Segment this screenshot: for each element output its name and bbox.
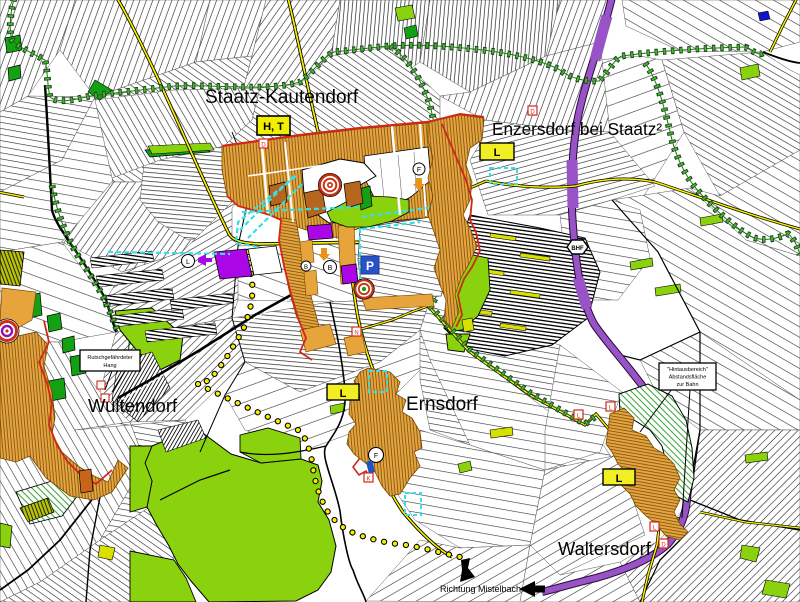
svg-text:BHF: BHF (571, 246, 584, 252)
svg-text:B: B (328, 265, 333, 272)
svg-text:Waltersdorf: Waltersdorf (558, 538, 652, 559)
svg-text:Staatz-Kautendorf: Staatz-Kautendorf (205, 87, 359, 108)
svg-text:L: L (494, 147, 501, 159)
svg-text:Enzersdorf bei Staatz²: Enzersdorf bei Staatz² (492, 119, 662, 139)
svg-text:Richtung Mistelbach: Richtung Mistelbach (440, 584, 521, 594)
svg-text:K: K (366, 477, 370, 483)
svg-text:H, T: H, T (263, 121, 284, 133)
svg-text:Rutschgefährdeter: Rutschgefährdeter (87, 355, 132, 361)
svg-text:L: L (186, 259, 190, 266)
svg-text:N: N (354, 331, 358, 337)
svg-text:Abstandsfläche: Abstandsfläche (669, 375, 707, 381)
svg-text:D: D (530, 110, 535, 116)
svg-text:D: D (661, 543, 666, 549)
svg-text:L: L (340, 388, 347, 400)
svg-text:Wultendorf: Wultendorf (88, 395, 178, 416)
svg-text:P: P (366, 259, 374, 273)
svg-text:F: F (417, 167, 421, 174)
svg-text:Hang: Hang (103, 363, 116, 369)
svg-text:zur Bahn: zur Bahn (676, 382, 698, 388)
svg-text:Ernsdorf: Ernsdorf (406, 394, 479, 415)
svg-text:D: D (261, 143, 266, 149)
svg-text:F: F (374, 453, 378, 460)
svg-text:L: L (616, 473, 623, 485)
svg-text:"Hintausbereich": "Hintausbereich" (667, 367, 708, 373)
svg-text:B: B (304, 265, 308, 271)
